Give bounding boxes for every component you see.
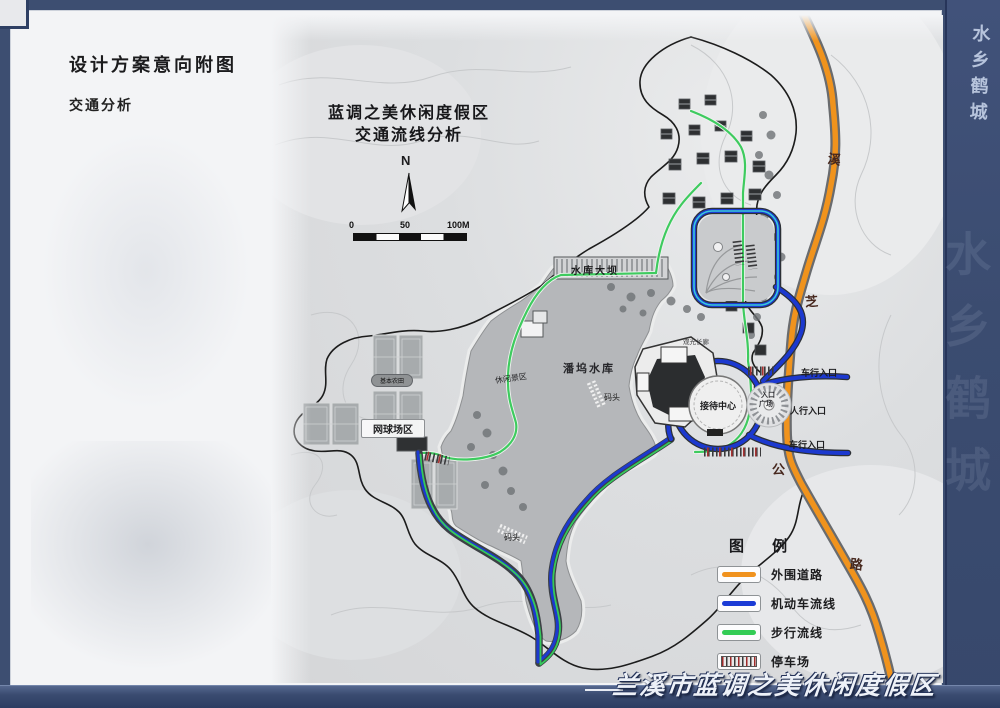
legend-swatch-motor-flow <box>717 595 761 612</box>
legend-row-outer-road: 外围道路 <box>717 564 877 584</box>
label-plaza-line2: 广场 <box>753 399 779 409</box>
legend-label: 步行流线 <box>771 624 823 641</box>
legend-label: 机动车流线 <box>771 595 836 612</box>
north-label: N <box>401 153 410 168</box>
label-entrance-car-upper: 车行入口 <box>801 366 837 379</box>
map-title: 蓝调之美休闲度假区 交通流线分析 <box>301 103 517 147</box>
footer-calligraphy: 兰溪市蓝调之美休闲度假区 <box>608 666 942 702</box>
design-scheme-page: { "page": { "title": "设计方案意向附图", "subtit… <box>0 0 1000 707</box>
drawing-paper: 设计方案意向附图 交通分析 <box>10 10 942 686</box>
legend-label: 外围道路 <box>771 566 823 583</box>
label-corridor: 观光长廊 <box>683 336 709 346</box>
label-farmland-badge: 基本农田 <box>371 374 413 387</box>
label-dam: 水库大坝 <box>571 262 651 277</box>
legend: 图 例 外围道路 机动车流线 步行流线 停车场 <box>717 535 877 680</box>
page-subtitle: 交通分析 <box>69 95 133 115</box>
label-entrance-pedestrian: 人行入口 <box>790 404 826 417</box>
legend-swatch-outer-road <box>717 566 761 583</box>
label-dock-upper: 码头 <box>604 392 620 403</box>
legend-row-motor-flow: 机动车流线 <box>717 593 877 613</box>
label-reservoir: 潘坞水库 <box>563 360 633 376</box>
paper-watermark <box>31 441 291 671</box>
highway-char-2: 芝 <box>804 291 818 311</box>
highway-char-3: 公 <box>772 459 785 478</box>
label-dock-lower: 码头 <box>504 532 520 543</box>
scale-start: 0 <box>349 220 354 230</box>
legend-row-walk-flow: 步行流线 <box>717 622 877 642</box>
map-title-line1: 蓝调之美休闲度假区 <box>301 103 517 125</box>
label-tennis-area: 网球场区 <box>361 419 425 438</box>
site-plan-map: 蓝调之美休闲度假区 交通流线分析 N 0 50 100M 水库大坝 潘坞水库 网… <box>271 15 943 683</box>
legend-title: 图 例 <box>729 535 877 556</box>
paper-watermark-2 <box>41 131 251 411</box>
frame-corner-square <box>0 0 29 29</box>
label-entrance-car-lower: 车行入口 <box>789 438 825 451</box>
reservoir-water <box>441 263 673 642</box>
scale-mid: 50 <box>400 220 410 230</box>
scale-end: 100M <box>447 220 470 230</box>
green-line-icon <box>722 630 756 635</box>
scale-bar <box>353 233 467 241</box>
highway-char-1: 溪 <box>827 148 843 169</box>
map-title-line2: 交通流线分析 <box>301 125 517 147</box>
parking-stripes-icon <box>721 656 757 667</box>
orange-line-icon <box>722 572 756 577</box>
blue-line-icon <box>722 601 756 606</box>
page-title: 设计方案意向附图 <box>69 51 237 77</box>
legend-swatch-walk-flow <box>717 624 761 641</box>
label-reception-center: 接待中心 <box>688 399 748 412</box>
